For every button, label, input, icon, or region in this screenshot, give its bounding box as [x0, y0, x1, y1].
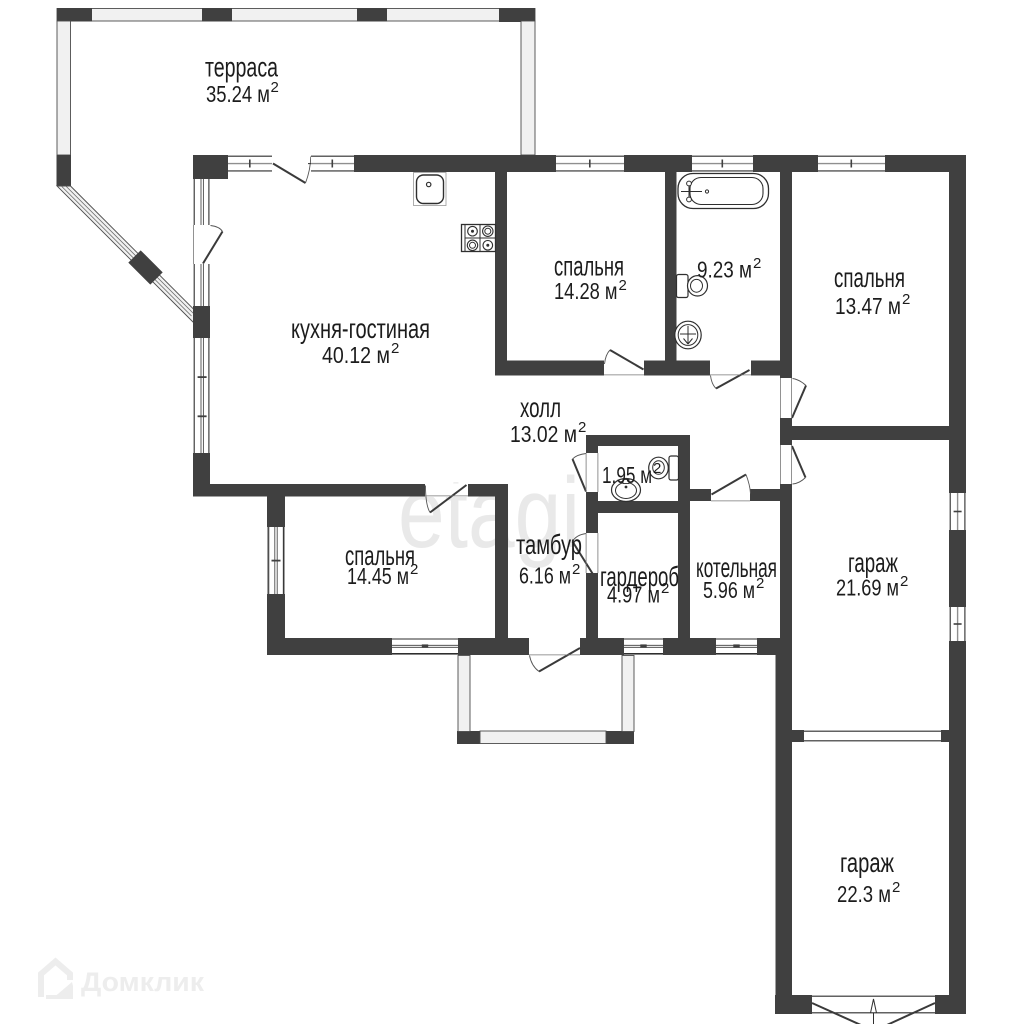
svg-text:35.24 м: 35.24 м — [206, 81, 270, 107]
svg-text:2: 2 — [619, 277, 627, 294]
svg-text:1.95 м: 1.95 м — [602, 462, 652, 488]
svg-text:гараж: гараж — [848, 547, 898, 578]
svg-text:холл: холл — [520, 392, 561, 423]
svg-text:21.69 м: 21.69 м — [836, 575, 899, 601]
svg-text:2: 2 — [271, 79, 279, 96]
svg-text:2: 2 — [900, 573, 908, 590]
svg-text:2: 2 — [661, 580, 669, 597]
svg-text:6.16 м: 6.16 м — [519, 563, 571, 589]
svg-text:2: 2 — [756, 575, 764, 592]
svg-text:спальня: спальня — [834, 262, 905, 293]
svg-text:14.45 м: 14.45 м — [347, 563, 409, 589]
svg-text:спальня: спальня — [554, 251, 624, 282]
svg-text:гараж: гараж — [840, 847, 894, 878]
svg-text:14.28 м: 14.28 м — [554, 278, 618, 304]
svg-text:2: 2 — [753, 255, 761, 272]
svg-text:Домклик: Домклик — [81, 967, 205, 997]
svg-text:2: 2 — [578, 419, 586, 436]
svg-text:2: 2 — [902, 291, 910, 308]
svg-text:кухня-гостиная: кухня-гостиная — [291, 313, 430, 344]
svg-text:5.96 м: 5.96 м — [703, 577, 755, 603]
svg-text:2: 2 — [410, 561, 418, 578]
svg-text:4.97 м: 4.97 м — [607, 582, 660, 608]
svg-text:2: 2 — [391, 340, 399, 357]
svg-text:13.47 м: 13.47 м — [835, 293, 901, 319]
svg-text:9.23 м: 9.23 м — [697, 257, 752, 283]
svg-text:2: 2 — [572, 561, 580, 578]
svg-text:тамбур: тамбур — [516, 529, 582, 560]
svg-text:22.3 м: 22.3 м — [837, 881, 891, 907]
svg-text:терраса: терраса — [205, 52, 278, 83]
svg-text:13.02 м: 13.02 м — [510, 421, 577, 447]
svg-text:40.12 м: 40.12 м — [322, 342, 390, 368]
svg-text:2: 2 — [892, 879, 900, 896]
svg-text:2: 2 — [653, 460, 661, 477]
